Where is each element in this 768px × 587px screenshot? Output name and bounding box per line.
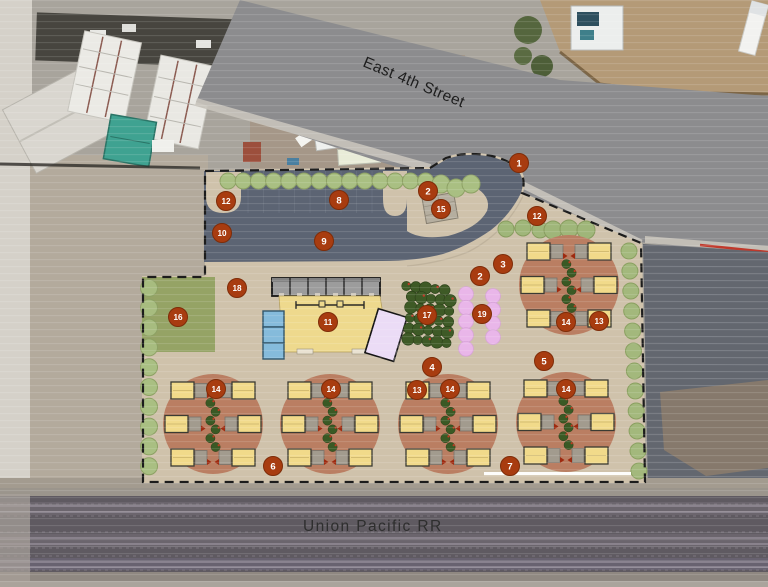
marker-number: 2 bbox=[477, 271, 482, 282]
marker-number: 14 bbox=[445, 385, 455, 394]
marker-number: 8 bbox=[336, 195, 341, 206]
marker-number: 11 bbox=[324, 318, 333, 327]
site-marker: 8 bbox=[330, 191, 349, 210]
site-marker: 2 bbox=[471, 267, 490, 286]
marker-number: 6 bbox=[270, 461, 275, 472]
marker-number: 4 bbox=[429, 362, 435, 373]
marker-number: 12 bbox=[221, 197, 231, 206]
scanline-overlay bbox=[0, 0, 768, 587]
site-marker: 13 bbox=[590, 312, 609, 331]
marker-number: 12 bbox=[532, 212, 542, 221]
site-marker: 12 bbox=[528, 207, 547, 226]
marker-number: 14 bbox=[561, 385, 571, 394]
railroad-label: Union Pacific RR bbox=[303, 518, 443, 535]
marker-number: 15 bbox=[436, 205, 446, 214]
site-marker: 6 bbox=[264, 457, 283, 476]
marker-number: 2 bbox=[425, 186, 430, 197]
aerial-site-plan: East 4th Street Union Pacific RR 1223456… bbox=[0, 0, 768, 587]
marker-number: 18 bbox=[232, 284, 242, 293]
site-marker: 14 bbox=[557, 313, 576, 332]
site-marker: 3 bbox=[494, 255, 513, 274]
site-plan-rendering: East 4th Street Union Pacific RR 1223456… bbox=[0, 0, 768, 587]
site-marker: 7 bbox=[501, 457, 520, 476]
site-marker: 14 bbox=[322, 380, 341, 399]
site-marker: 18 bbox=[228, 279, 247, 298]
site-marker: 1 bbox=[510, 154, 529, 173]
marker-number: 10 bbox=[217, 229, 227, 238]
site-marker: 4 bbox=[423, 358, 442, 377]
marker-number: 14 bbox=[211, 385, 221, 394]
marker-number: 13 bbox=[412, 386, 422, 395]
site-marker: 17 bbox=[418, 306, 437, 325]
site-marker: 13 bbox=[408, 381, 427, 400]
site-marker: 10 bbox=[213, 224, 232, 243]
site-marker: 19 bbox=[473, 305, 492, 324]
marker-number: 5 bbox=[541, 356, 547, 367]
site-marker: 11 bbox=[319, 313, 338, 332]
marker-number: 3 bbox=[500, 259, 505, 270]
site-marker: 14 bbox=[557, 380, 576, 399]
site-marker: 16 bbox=[169, 308, 188, 327]
marker-number: 16 bbox=[173, 313, 183, 322]
marker-number: 13 bbox=[594, 317, 604, 326]
marker-number: 19 bbox=[477, 310, 487, 319]
site-marker: 5 bbox=[535, 352, 554, 371]
marker-number: 17 bbox=[422, 311, 432, 320]
site-marker: 15 bbox=[432, 200, 451, 219]
site-marker: 14 bbox=[441, 380, 460, 399]
site-marker: 9 bbox=[315, 232, 334, 251]
marker-number: 1 bbox=[516, 158, 522, 169]
site-marker: 2 bbox=[419, 182, 438, 201]
marker-number: 14 bbox=[561, 318, 571, 327]
marker-number: 14 bbox=[326, 385, 336, 394]
site-marker: 12 bbox=[217, 192, 236, 211]
marker-number: 7 bbox=[507, 461, 512, 472]
marker-number: 9 bbox=[321, 236, 326, 247]
site-marker: 14 bbox=[207, 380, 226, 399]
